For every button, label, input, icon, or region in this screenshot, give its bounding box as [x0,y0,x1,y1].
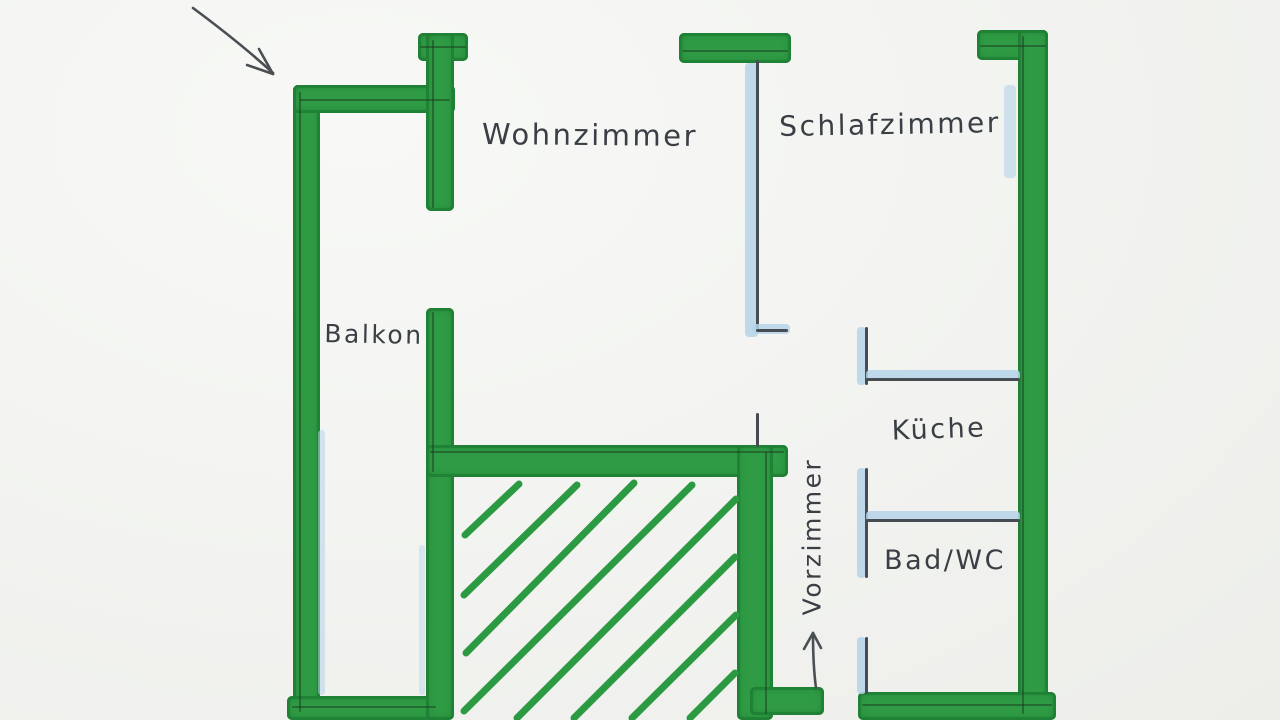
wall-schlafzimmer-kueche [866,378,1020,381]
wall-shading [318,430,325,695]
pencil-guide [292,706,436,708]
wall-kueche-bad-jamb [865,468,868,578]
pencil-guide [682,50,788,52]
room-label-vorzimmer: Vorzimmer [798,457,827,617]
pencil-guide [765,452,767,714]
room-label-balkon: Balkon [318,319,430,350]
pencil-guide [862,704,1052,706]
room-label-bad-wc: Bad/WC [878,545,1012,576]
pencil-guide [300,99,450,101]
hatch-line [464,485,692,711]
floor-plan-canvas: Wohnzimmer Schlafzimmer Balkon Küche Bad… [0,0,1280,720]
wall-wohnzimmer-schlafzimmer [756,60,759,332]
pencil-guide [420,46,466,48]
pencil-guide [432,312,434,472]
pencil-guide [1022,36,1024,714]
wall-balcony-left [293,85,320,720]
hatch-line [517,499,736,718]
hatch-line [464,485,577,595]
pencil-guide [430,451,784,453]
wall-bad-vorzimmer-jamb [865,637,868,694]
room-label-wohnzimmer: Wohnzimmer [455,117,725,153]
wall-hatch-room-top [426,445,788,477]
pencil-guide [299,92,301,712]
pencil-guide [432,40,434,208]
wall-bottom-right [858,692,1056,720]
entrance-arrow-icon [780,615,840,715]
hatch-line [690,673,735,718]
room-label-schlafzimmer: Schlafzimmer [768,106,1013,143]
wall-left-upper [426,33,454,211]
wall-shading [419,545,425,695]
wall-kueche-bad [866,519,1020,522]
hatch-pattern [455,475,745,720]
hatch-line [632,615,736,718]
pencil-guide [980,45,1046,47]
door-jamb-tick [756,329,788,332]
door-jamb-tick [756,413,759,447]
room-label-kueche: Küche [882,412,995,447]
wall-top-middle-segment [679,33,791,63]
balcony-pointer-arrow-icon [0,0,320,120]
hatch-line [465,484,519,535]
wall-balcony-bottom [287,696,438,720]
wall-left-lower [426,308,454,720]
